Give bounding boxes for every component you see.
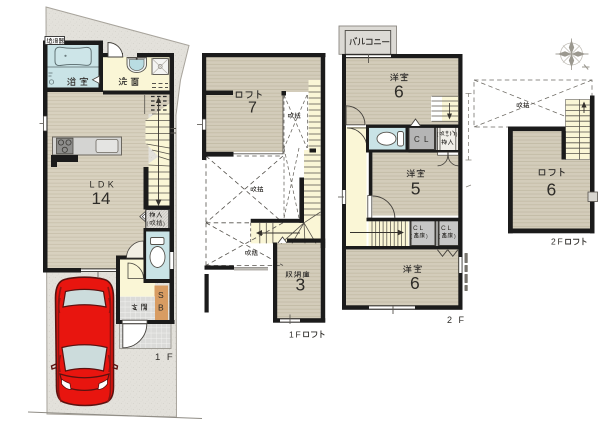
- svg-text:3: 3: [296, 275, 306, 295]
- svg-text:2 F: 2 F: [447, 315, 466, 325]
- svg-text:F: F: [296, 330, 301, 340]
- svg-text:6: 6: [547, 180, 557, 200]
- svg-text:7: 7: [248, 100, 257, 117]
- svg-text:5: 5: [411, 178, 421, 198]
- svg-text:1 F: 1 F: [155, 352, 175, 363]
- svg-text:F: F: [558, 237, 563, 247]
- svg-text:C L: C L: [413, 225, 424, 232]
- svg-text:6: 6: [394, 82, 404, 102]
- svg-text:1: 1: [289, 330, 294, 340]
- svg-text:S: S: [158, 290, 164, 300]
- svg-text:C L: C L: [441, 225, 452, 232]
- svg-text:): ): [163, 222, 165, 228]
- svg-text:6: 6: [410, 273, 420, 293]
- svg-text:C L: C L: [414, 135, 429, 144]
- svg-text:(: (: [147, 222, 149, 228]
- svg-text:B: B: [158, 303, 164, 313]
- svg-text:LDK: LDK: [90, 180, 118, 190]
- svg-text:2: 2: [551, 237, 556, 247]
- svg-text:14: 14: [92, 189, 111, 208]
